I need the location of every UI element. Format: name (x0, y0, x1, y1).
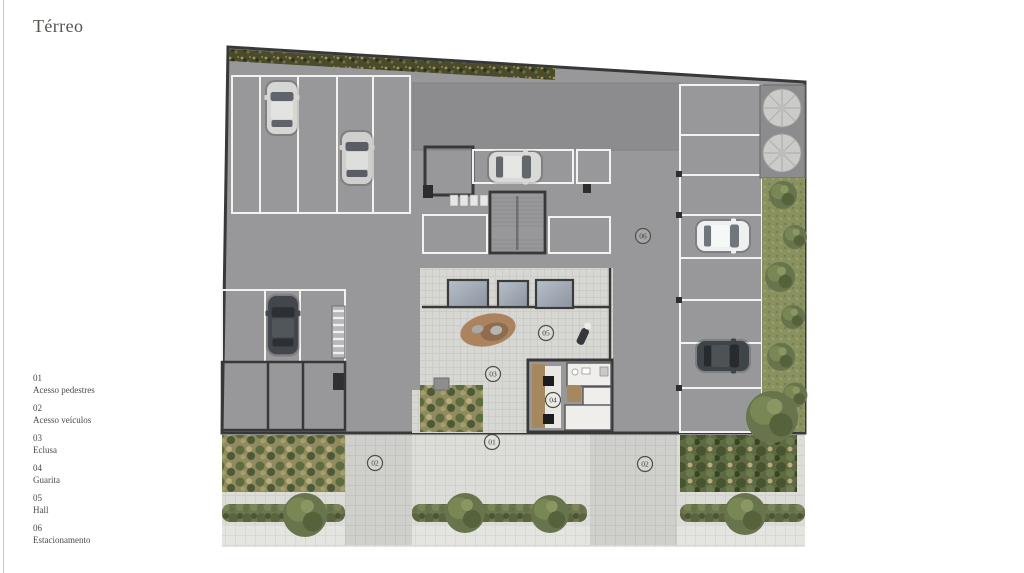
legend-label: Acesso veículos (33, 414, 95, 426)
floor-plan: 01 02 02 03 04 05 06 (215, 45, 811, 547)
legend-num: 05 (33, 492, 95, 504)
water-tanks (760, 85, 805, 178)
svg-text:05: 05 (542, 329, 550, 338)
column (583, 184, 591, 193)
legend-item-estacionamento: 06 Estacionamento (33, 522, 95, 546)
marker-guarita: 04 (546, 393, 561, 408)
legend-item-guarita: 04 Guarita (33, 462, 95, 486)
legend-label: Estacionamento (33, 534, 95, 546)
car-silver-2 (340, 130, 375, 186)
svg-text:06: 06 (639, 232, 647, 241)
chair (543, 414, 554, 424)
driveway-right (590, 433, 677, 545)
svg-text:01: 01 (488, 438, 496, 447)
svg-text:03: 03 (489, 370, 497, 379)
marker-eclusa: 03 (486, 367, 501, 382)
car-white-1 (695, 219, 751, 254)
legend-label: Acesso pedestres (33, 384, 95, 396)
car-silver-1 (265, 80, 300, 136)
chair (543, 376, 554, 386)
legend-num: 03 (33, 432, 95, 444)
legend-num: 02 (33, 402, 95, 414)
svg-text:04: 04 (549, 396, 557, 405)
page-title: Térreo (33, 16, 83, 37)
wall-nub (423, 185, 433, 198)
legend-label: Guarita (33, 474, 95, 486)
marker-estacionamento: 06 (636, 229, 651, 244)
legend-num: 06 (33, 522, 95, 534)
legend: 01 Acesso pedestres 02 Acesso veículos 0… (33, 372, 95, 552)
wall-stub (333, 373, 345, 390)
legend-item-hall: 05 Hall (33, 492, 95, 516)
marker-acesso-pedestres: 01 (485, 435, 500, 450)
car-dark-2 (695, 339, 751, 374)
legend-item-acesso-veiculos: 02 Acesso veículos (33, 402, 95, 426)
svg-text:02: 02 (641, 460, 649, 469)
legend-label: Hall (33, 504, 95, 516)
entrance-canopies (448, 280, 573, 308)
small-stair (332, 306, 345, 358)
front-plaza (222, 433, 805, 547)
side-garden (420, 378, 483, 432)
car-dark-1 (266, 294, 301, 357)
desk-wood (567, 385, 581, 402)
bottom-garden-left (222, 435, 345, 492)
legend-num: 01 (33, 372, 95, 384)
legend-item-eclusa: 03 Eclusa (33, 432, 95, 456)
legend-item-acesso-pedestres: 01 Acesso pedestres (33, 372, 95, 396)
upper-slab (413, 83, 680, 150)
legend-label: Eclusa (33, 444, 95, 456)
floor-plan-svg: 01 02 02 03 04 05 06 (215, 45, 811, 547)
marker-hall: 05 (539, 326, 554, 341)
guarita-booth (528, 360, 612, 432)
legend-num: 04 (33, 462, 95, 474)
driveway-left (345, 433, 412, 545)
left-rule (3, 0, 4, 573)
bottom-garden-right (680, 435, 797, 492)
svg-text:02: 02 (371, 459, 379, 468)
page: Térreo 01 Acesso pedestres 02 Acesso veí… (0, 0, 1024, 573)
marker-acesso-veiculos-direita: 02 (638, 457, 653, 472)
marker-acesso-veiculos-esquerda: 02 (368, 456, 383, 471)
car-silver-3 (487, 150, 543, 185)
